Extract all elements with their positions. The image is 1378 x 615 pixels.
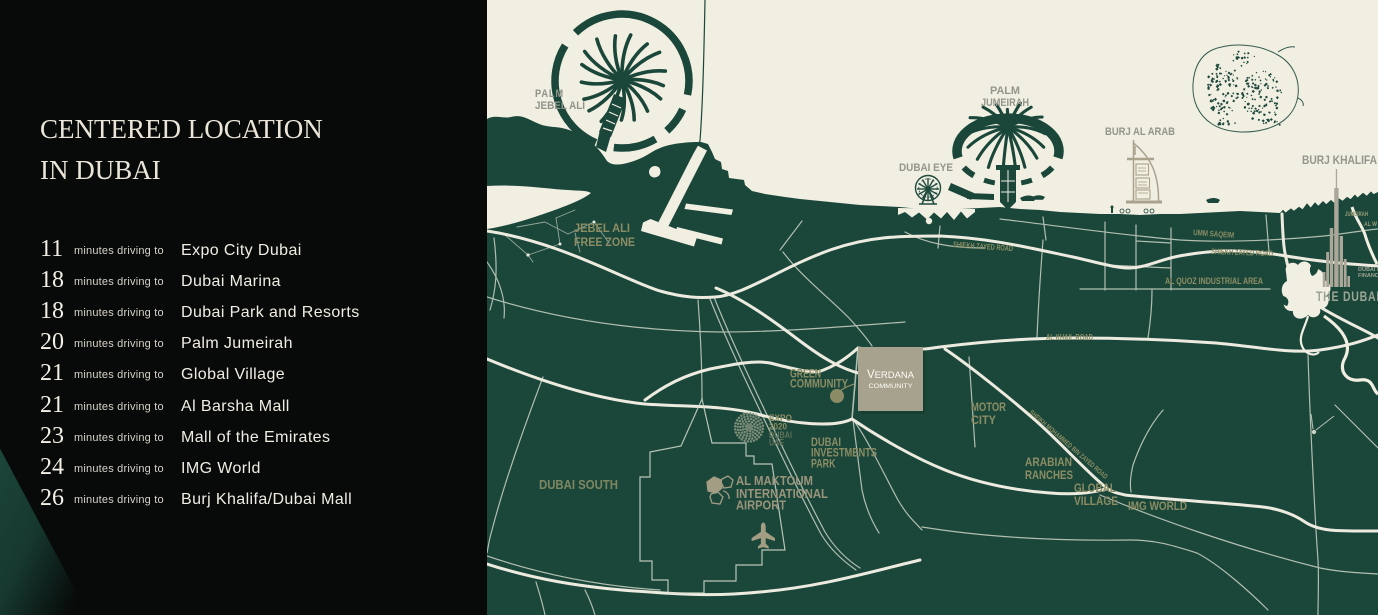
- svg-text:VERDANA: VERDANA: [867, 369, 915, 381]
- svg-text:THE DUBAI: THE DUBAI: [1316, 288, 1378, 304]
- svg-text:FINANC: FINANC: [1358, 273, 1378, 279]
- svg-text:COMMUNITY: COMMUNITY: [869, 383, 914, 390]
- svg-text:PALM: PALM: [990, 85, 1020, 97]
- svg-text:GLOBAL: GLOBAL: [1074, 481, 1116, 495]
- svg-text:JUMEIRAH: JUMEIRAH: [1345, 212, 1368, 218]
- svg-text:AL QUOZ INDUSTRIAL AREA: AL QUOZ INDUSTRIAL AREA: [1165, 276, 1263, 286]
- svg-text:AL KHAIL ROAD: AL KHAIL ROAD: [1046, 333, 1093, 342]
- svg-text:UAE: UAE: [769, 438, 784, 448]
- svg-text:AL W: AL W: [1364, 222, 1377, 228]
- svg-text:JEBEL ALI: JEBEL ALI: [574, 221, 630, 235]
- svg-text:BURJ KHALIFA: BURJ KHALIFA: [1302, 155, 1377, 167]
- svg-text:FREE ZONE: FREE ZONE: [574, 235, 635, 249]
- svg-text:MOTOR: MOTOR: [971, 400, 1006, 414]
- svg-text:JUMEIRAH: JUMEIRAH: [981, 97, 1029, 109]
- svg-text:VILLAGE: VILLAGE: [1074, 494, 1118, 508]
- svg-text:COMMUNITY: COMMUNITY: [790, 377, 848, 391]
- svg-text:AIRPORT: AIRPORT: [736, 498, 786, 513]
- svg-text:DUBAI EYE: DUBAI EYE: [899, 162, 953, 174]
- svg-text:ARABIAN: ARABIAN: [1025, 455, 1072, 469]
- svg-text:CITY: CITY: [971, 413, 996, 427]
- svg-text:JEBEL ALI: JEBEL ALI: [535, 100, 585, 112]
- svg-text:DUBAI SOUTH: DUBAI SOUTH: [539, 478, 618, 492]
- svg-text:PALM: PALM: [535, 88, 564, 100]
- svg-text:BURJ AL ARAB: BURJ AL ARAB: [1105, 126, 1175, 138]
- svg-text:PARK: PARK: [811, 456, 836, 470]
- svg-text:RANCHES: RANCHES: [1025, 468, 1073, 482]
- svg-text:IMG WORLD: IMG WORLD: [1128, 499, 1187, 513]
